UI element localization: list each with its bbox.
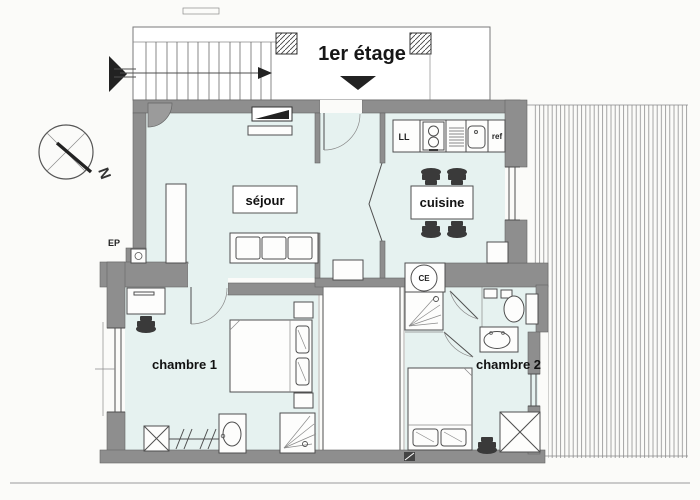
threshold-marker bbox=[404, 452, 415, 461]
north-label: N bbox=[94, 166, 114, 182]
rainwater-downpipe bbox=[131, 249, 146, 263]
side-table bbox=[333, 260, 363, 280]
compass: N bbox=[39, 125, 114, 182]
cabinet bbox=[166, 184, 186, 263]
bedroom1-window bbox=[95, 322, 125, 416]
column-hatched-right bbox=[410, 33, 431, 54]
living-room-label: séjour bbox=[233, 186, 297, 213]
radiator bbox=[248, 126, 292, 135]
base-cabinet bbox=[487, 242, 508, 263]
shower-hall bbox=[405, 292, 443, 330]
light-well-void bbox=[323, 287, 400, 450]
floor-title: 1er étage bbox=[318, 43, 406, 65]
bedroom1-label-text: chambre 1 bbox=[152, 357, 217, 372]
south-facade-wall bbox=[100, 450, 545, 463]
living-room-vent-symbol bbox=[252, 107, 292, 121]
washbasin bbox=[480, 327, 518, 352]
neighbor-roof-hatch bbox=[533, 105, 688, 458]
kitchen-window bbox=[505, 167, 520, 220]
shower-tray bbox=[280, 413, 316, 453]
nightstand bbox=[294, 393, 313, 408]
floor-plan-page: N 1er étage bbox=[0, 0, 700, 500]
fridge-label: ref bbox=[492, 132, 503, 141]
washing-machine-label: LL bbox=[399, 132, 410, 142]
cooktop bbox=[423, 122, 444, 151]
wardrobe bbox=[500, 412, 540, 452]
floor-plan-drawing: N 1er étage bbox=[0, 0, 700, 500]
column-hatched-left bbox=[276, 33, 297, 54]
double-bed bbox=[230, 320, 312, 392]
kitchen-label-text: cuisine bbox=[420, 195, 465, 210]
double-bed bbox=[408, 368, 472, 450]
water-heater-label: CE bbox=[418, 274, 430, 283]
washbasin-niche bbox=[219, 414, 246, 453]
kitchen-sink bbox=[468, 126, 485, 148]
stairwell: 1er étage bbox=[109, 8, 490, 100]
bedroom2-label-text: chambre 2 bbox=[476, 357, 541, 372]
rainwater-downpipe-label: EP bbox=[108, 238, 120, 248]
water-heater: CE bbox=[405, 263, 445, 292]
nightstand bbox=[294, 302, 313, 318]
landing-outline bbox=[133, 27, 490, 100]
sofa bbox=[230, 233, 318, 263]
north-needle bbox=[57, 143, 91, 172]
desk bbox=[127, 288, 165, 314]
living-room-label-text: séjour bbox=[245, 193, 284, 208]
dish-drainer bbox=[449, 128, 464, 146]
